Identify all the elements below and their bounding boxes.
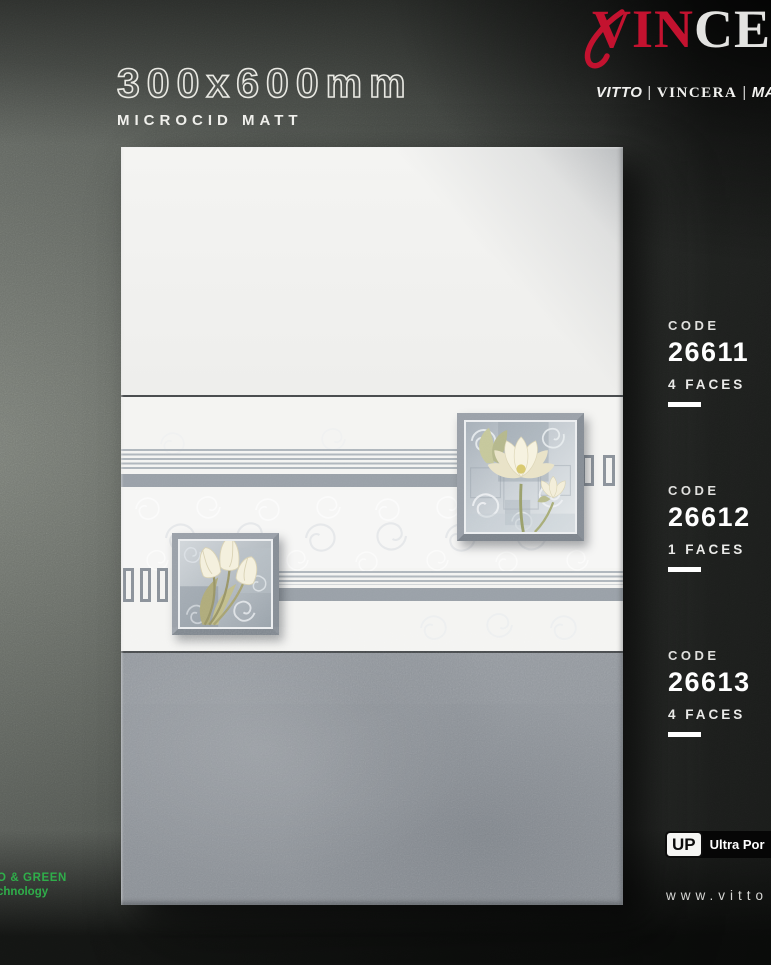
up-label: Ultra Por: [698, 831, 771, 858]
spec-block-3: CODE 26613 4 FACES: [668, 648, 771, 737]
subbrand-line: VITTO|VINCERA|MAX: [596, 84, 771, 102]
decor-tab: [157, 568, 168, 602]
tile-plain-gray: [121, 653, 623, 905]
tulip-picture: [178, 539, 273, 629]
underline-bar: [668, 732, 701, 737]
subbrand-vitto: VITTO: [596, 84, 642, 101]
subbrand-vincera: VINCERA: [657, 85, 738, 101]
brand-logo: VINCE: [592, 0, 771, 59]
gray-band-bottom: [270, 588, 623, 601]
tile-decor: [121, 397, 623, 651]
spec-block-2: CODE 26612 1 FACES: [668, 483, 771, 572]
pinstripe-group-top: [121, 449, 457, 470]
up-abbr: UP: [665, 831, 703, 858]
brand-logo-red: VIN: [592, 0, 694, 59]
spec-block-1: CODE 26611 4 FACES: [668, 318, 771, 407]
eco-green-mark: O & GREEN chnology: [0, 871, 67, 900]
code-label: CODE: [668, 483, 771, 498]
underline-bar: [668, 402, 701, 407]
decor-tab: [603, 455, 615, 486]
subbrand-separator: |: [737, 84, 751, 101]
eco-line2: chnology: [0, 885, 67, 899]
catalog-page: 300x600mm MICROCID MATT VINCE VITTO|VINC…: [0, 0, 771, 965]
code-value: 26613: [668, 667, 771, 698]
eco-line1: O & GREEN: [0, 871, 67, 885]
subbrand-max: MAX: [752, 84, 771, 101]
decor-tab: [123, 568, 134, 602]
lotus-picture: [464, 420, 577, 534]
faces-label: 4 FACES: [668, 707, 771, 722]
subbrand-separator: |: [642, 84, 656, 101]
code-label: CODE: [668, 648, 771, 663]
underline-bar: [668, 567, 701, 572]
code-label: CODE: [668, 318, 771, 333]
tile-plain-light: [121, 147, 623, 395]
up-badge: UP Ultra Por: [665, 831, 771, 858]
faces-label: 4 FACES: [668, 377, 771, 392]
pinstripe-group-bottom: [270, 571, 623, 585]
product-headline: 300x600mm MICROCID MATT: [117, 62, 413, 129]
decor-tab: [140, 568, 151, 602]
lotus-frame: [457, 413, 584, 541]
gray-band-top: [121, 474, 457, 487]
website-text: www.vitto: [666, 888, 768, 903]
tulip-frame: [172, 533, 279, 635]
size-label: 300x600mm: [117, 62, 413, 105]
finish-label: MICROCID MATT: [117, 112, 413, 129]
brand-logo-light: CE: [694, 0, 771, 59]
code-value: 26612: [668, 502, 771, 533]
tile-panel: [121, 147, 623, 905]
faces-label: 1 FACES: [668, 542, 771, 557]
code-value: 26611: [668, 337, 771, 368]
